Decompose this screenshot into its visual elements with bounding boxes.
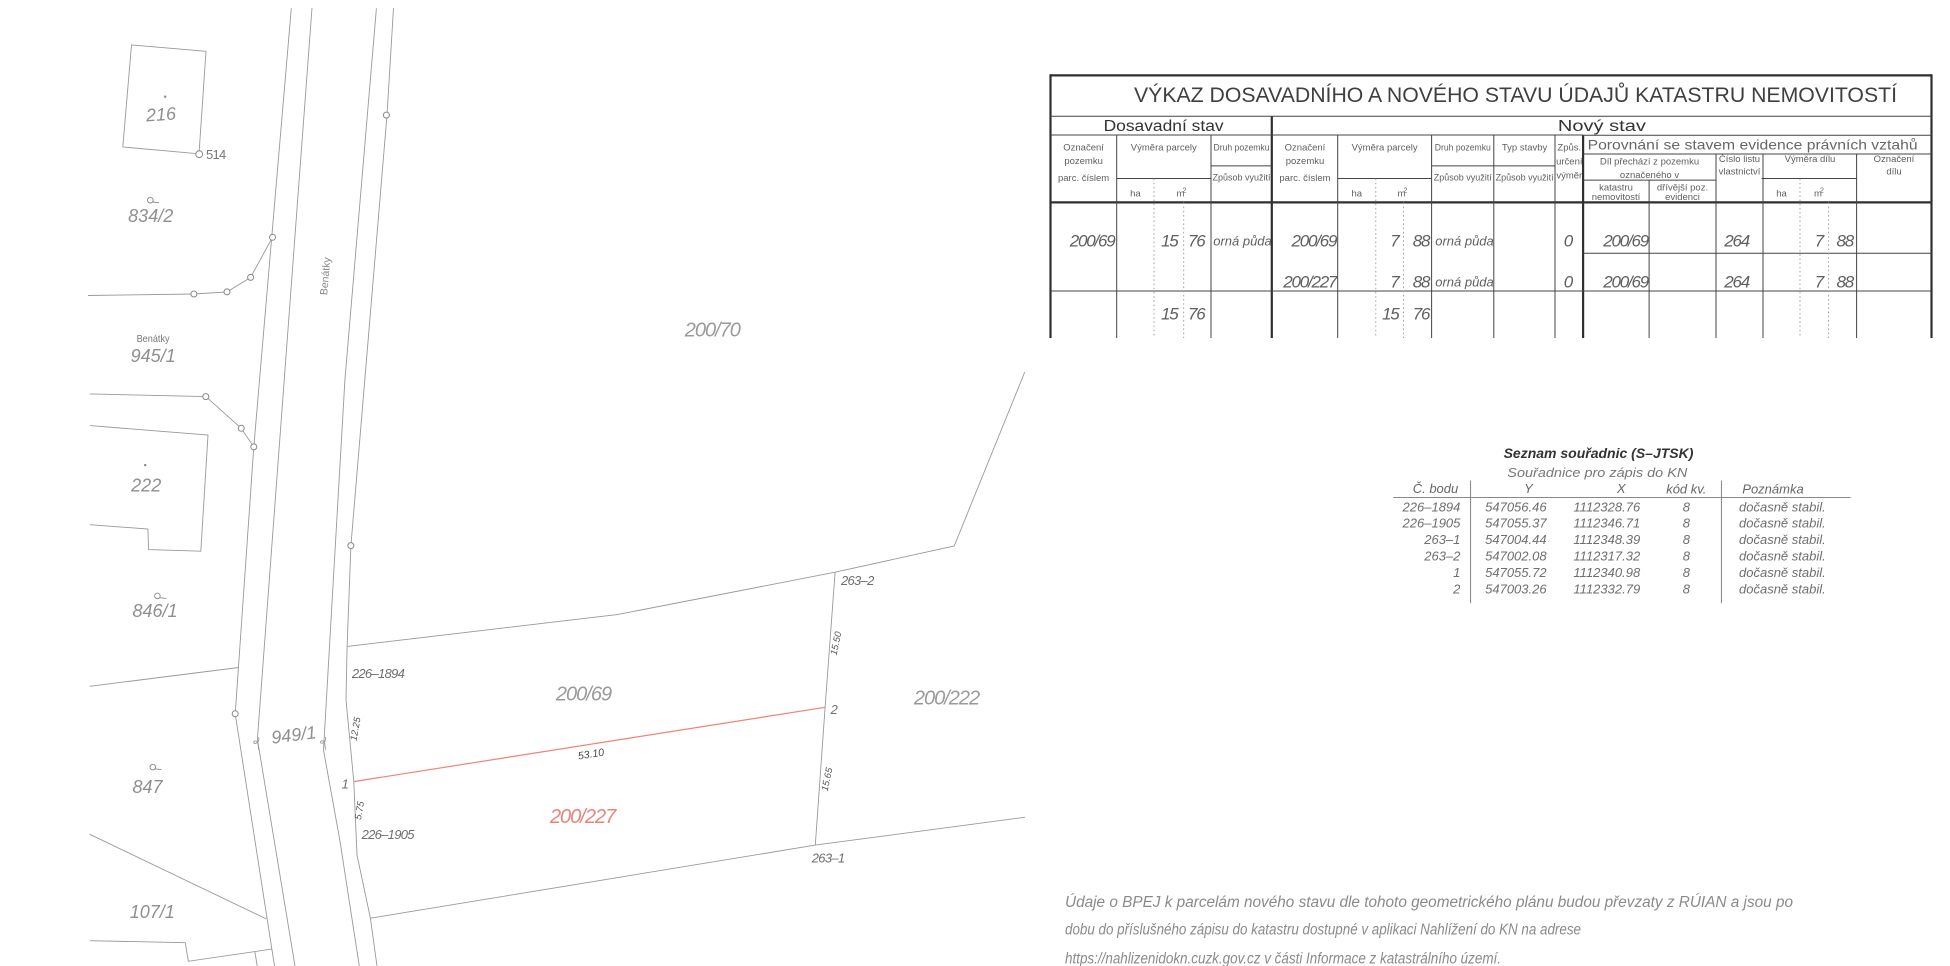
svg-text:547055.72: 547055.72 [1485,565,1547,580]
svg-text:514: 514 [206,147,226,162]
svg-text:264: 264 [1723,273,1750,292]
svg-text:parc. číslem: parc. číslem [1058,173,1109,184]
svg-text:Označení: Označení [1874,154,1915,165]
svg-text:8: 8 [1683,532,1691,547]
svg-text:1112328.76: 1112328.76 [1573,500,1641,515]
svg-text:výměr: výměr [1556,171,1582,182]
svg-text:označeného v: označeného v [1620,170,1679,181]
svg-text:200/70: 200/70 [684,319,741,341]
svg-text:Výměra dílu: Výměra dílu [1785,154,1836,165]
svg-text:2: 2 [1452,581,1461,596]
svg-text:dočasně stabil.: dočasně stabil. [1739,581,1826,596]
svg-text:834/2: 834/2 [128,206,173,226]
svg-text:určení: určení [1556,157,1583,168]
svg-text:88: 88 [1413,273,1431,292]
svg-text:846/1: 846/1 [132,601,177,621]
svg-text:pozemku: pozemku [1286,156,1325,167]
svg-text:0: 0 [1564,273,1574,292]
svg-text:8: 8 [1683,565,1691,580]
svg-text:263–1: 263–1 [811,850,845,865]
svg-text:ha: ha [1130,189,1141,200]
svg-text:1112346.71: 1112346.71 [1573,516,1640,531]
svg-text:pozemku: pozemku [1064,156,1103,167]
svg-text:200/69: 200/69 [1069,232,1117,251]
svg-text:547056.46: 547056.46 [1485,500,1547,515]
svg-text:226–1905: 226–1905 [361,827,416,842]
svg-text:547004.44: 547004.44 [1485,532,1546,547]
svg-text:222: 222 [130,475,161,495]
svg-text:263–2: 263–2 [840,573,875,588]
svg-text:107/1: 107/1 [130,902,175,922]
svg-text:7: 7 [1390,232,1400,251]
svg-text:8: 8 [1683,516,1691,531]
svg-text:2: 2 [1183,188,1187,195]
svg-text:15: 15 [1161,232,1179,251]
svg-text:dočasně stabil.: dočasně stabil. [1739,532,1826,547]
svg-text:547002.08: 547002.08 [1485,548,1547,563]
svg-text:2: 2 [1820,188,1824,195]
svg-text:orná půda: orná půda [1435,234,1494,249]
svg-text:Označení: Označení [1063,143,1104,154]
svg-text:76: 76 [1413,305,1431,324]
svg-text:https://nahlizenidokn.cuzk.gov: https://nahlizenidokn.cuzk.gov.cz v část… [1065,951,1501,966]
svg-text:Porovnání se stavem evidence p: Porovnání se stavem evidence právních vz… [1588,137,1918,153]
svg-text:dílu: dílu [1886,166,1901,177]
svg-text:vlastnictví: vlastnictví [1719,166,1761,177]
svg-text:dočasně stabil.: dočasně stabil. [1739,516,1826,531]
svg-text:Označení: Označení [1285,143,1326,154]
svg-text:88: 88 [1836,232,1854,251]
svg-text:200/69: 200/69 [1291,232,1339,251]
svg-text:orná půda: orná půda [1213,234,1272,249]
svg-text:945/1: 945/1 [131,346,176,366]
svg-text:2: 2 [830,702,839,717]
svg-text:parc. číslem: parc. číslem [1279,173,1330,184]
svg-text:0: 0 [1564,232,1574,251]
svg-text:200/227: 200/227 [1282,273,1338,292]
svg-text:dobu do příslušného zápisu do: dobu do příslušného zápisu do katastru d… [1065,922,1581,939]
svg-text:88: 88 [1836,273,1854,292]
svg-text:Č. bodu: Č. bodu [1413,481,1459,496]
svg-text:evidenci: evidenci [1665,192,1700,203]
svg-text:1112317.32: 1112317.32 [1573,548,1641,563]
svg-text:dočasně stabil.: dočasně stabil. [1739,500,1826,515]
svg-text:226–1894: 226–1894 [1402,500,1461,515]
svg-text:Benátky: Benátky [318,256,333,296]
svg-text:200/69: 200/69 [1602,273,1650,292]
svg-text:15.50: 15.50 [829,630,845,656]
svg-text:76: 76 [1188,232,1206,251]
svg-text:8: 8 [1683,548,1691,563]
svg-text:Nový stav: Nový stav [1558,118,1646,135]
svg-text:200/69: 200/69 [1602,232,1650,251]
svg-text:Výměra parcely: Výměra parcely [1352,143,1418,154]
svg-text:1112348.39: 1112348.39 [1573,532,1640,547]
svg-text:ha: ha [1776,189,1787,200]
svg-text:1112340.98: 1112340.98 [1573,565,1641,580]
svg-text:1: 1 [1453,565,1460,580]
svg-text:15: 15 [1382,305,1400,324]
svg-text:15.65: 15.65 [820,766,836,792]
svg-text:200/227: 200/227 [549,806,617,828]
svg-text:226–1905: 226–1905 [1402,516,1462,531]
svg-text:5.75: 5.75 [353,800,367,821]
svg-text:Dosavadní stav: Dosavadní stav [1104,118,1224,135]
svg-text:X: X [1616,481,1627,496]
svg-text:547055.37: 547055.37 [1485,516,1547,531]
svg-text:263–1: 263–1 [1423,532,1460,547]
svg-text:88: 88 [1413,232,1431,251]
svg-text:Poznámka: Poznámka [1742,482,1803,497]
svg-text:264: 264 [1723,232,1750,251]
svg-text:1112332.79: 1112332.79 [1573,581,1640,596]
svg-text:847: 847 [132,777,163,797]
svg-text:1: 1 [342,777,349,792]
svg-text:Způs.: Způs. [1557,143,1581,154]
svg-text:76: 76 [1188,305,1206,324]
svg-text:Typ stavby: Typ stavby [1502,143,1548,154]
svg-text:200/222: 200/222 [913,688,980,710]
svg-text:547003.26: 547003.26 [1485,581,1547,596]
svg-text:Y: Y [1524,481,1534,496]
svg-text:ha: ha [1352,189,1363,200]
svg-text:VÝKAZ DOSAVADNÍHO A NOVÉHO: VÝKAZ DOSAVADNÍHO A NOVÉHO STAVU ÚDAJŮ K… [1134,83,1897,107]
svg-text:Druh pozemku: Druh pozemku [1214,143,1270,154]
svg-text:216: 216 [144,103,177,125]
svg-text:Druh pozemku: Druh pozemku [1435,143,1491,154]
svg-text:nemovitostí: nemovitostí [1592,192,1641,203]
svg-text:Benátky: Benátky [137,333,171,345]
svg-text:7: 7 [1390,273,1400,292]
svg-text:949/1: 949/1 [270,722,317,747]
svg-text:Způsob využití: Způsob využití [1434,172,1492,183]
svg-text:Seznam souřadnic (S–JTSK): Seznam souřadnic (S–JTSK) [1504,445,1694,461]
svg-text:12.25: 12.25 [349,716,364,742]
svg-text:200/69: 200/69 [555,683,612,705]
svg-text:226–1894: 226–1894 [351,666,405,681]
svg-text:Souřadnice pro zápis do KN: Souřadnice pro zápis do KN [1507,465,1688,480]
svg-text:Výměra parcely: Výměra parcely [1131,143,1197,154]
svg-text:263–2: 263–2 [1423,548,1461,563]
svg-text:Číslo listu: Číslo listu [1719,154,1760,165]
svg-text:8: 8 [1683,500,1691,515]
svg-text:7: 7 [1815,273,1825,292]
svg-text:15: 15 [1161,305,1179,324]
svg-text:Údaje o BPEJ k parcelám nového: Údaje o BPEJ k parcelám nového stavu dle… [1065,894,1793,911]
svg-text:kód kv.: kód kv. [1666,482,1706,497]
svg-text:Způsob využití: Způsob využití [1213,172,1271,183]
svg-text:Způsob využití: Způsob využití [1496,172,1554,183]
svg-text:7: 7 [1815,232,1825,251]
svg-text:Díl přechází z pozemku: Díl přechází z pozemku [1600,157,1699,168]
svg-text:orná půda: orná půda [1435,275,1494,290]
svg-text:53.10: 53.10 [577,747,605,763]
svg-text:8: 8 [1683,581,1691,596]
svg-text:dočasně stabil.: dočasně stabil. [1739,548,1826,563]
svg-text:dočasně stabil.: dočasně stabil. [1739,565,1826,580]
svg-text:2: 2 [1404,188,1408,195]
